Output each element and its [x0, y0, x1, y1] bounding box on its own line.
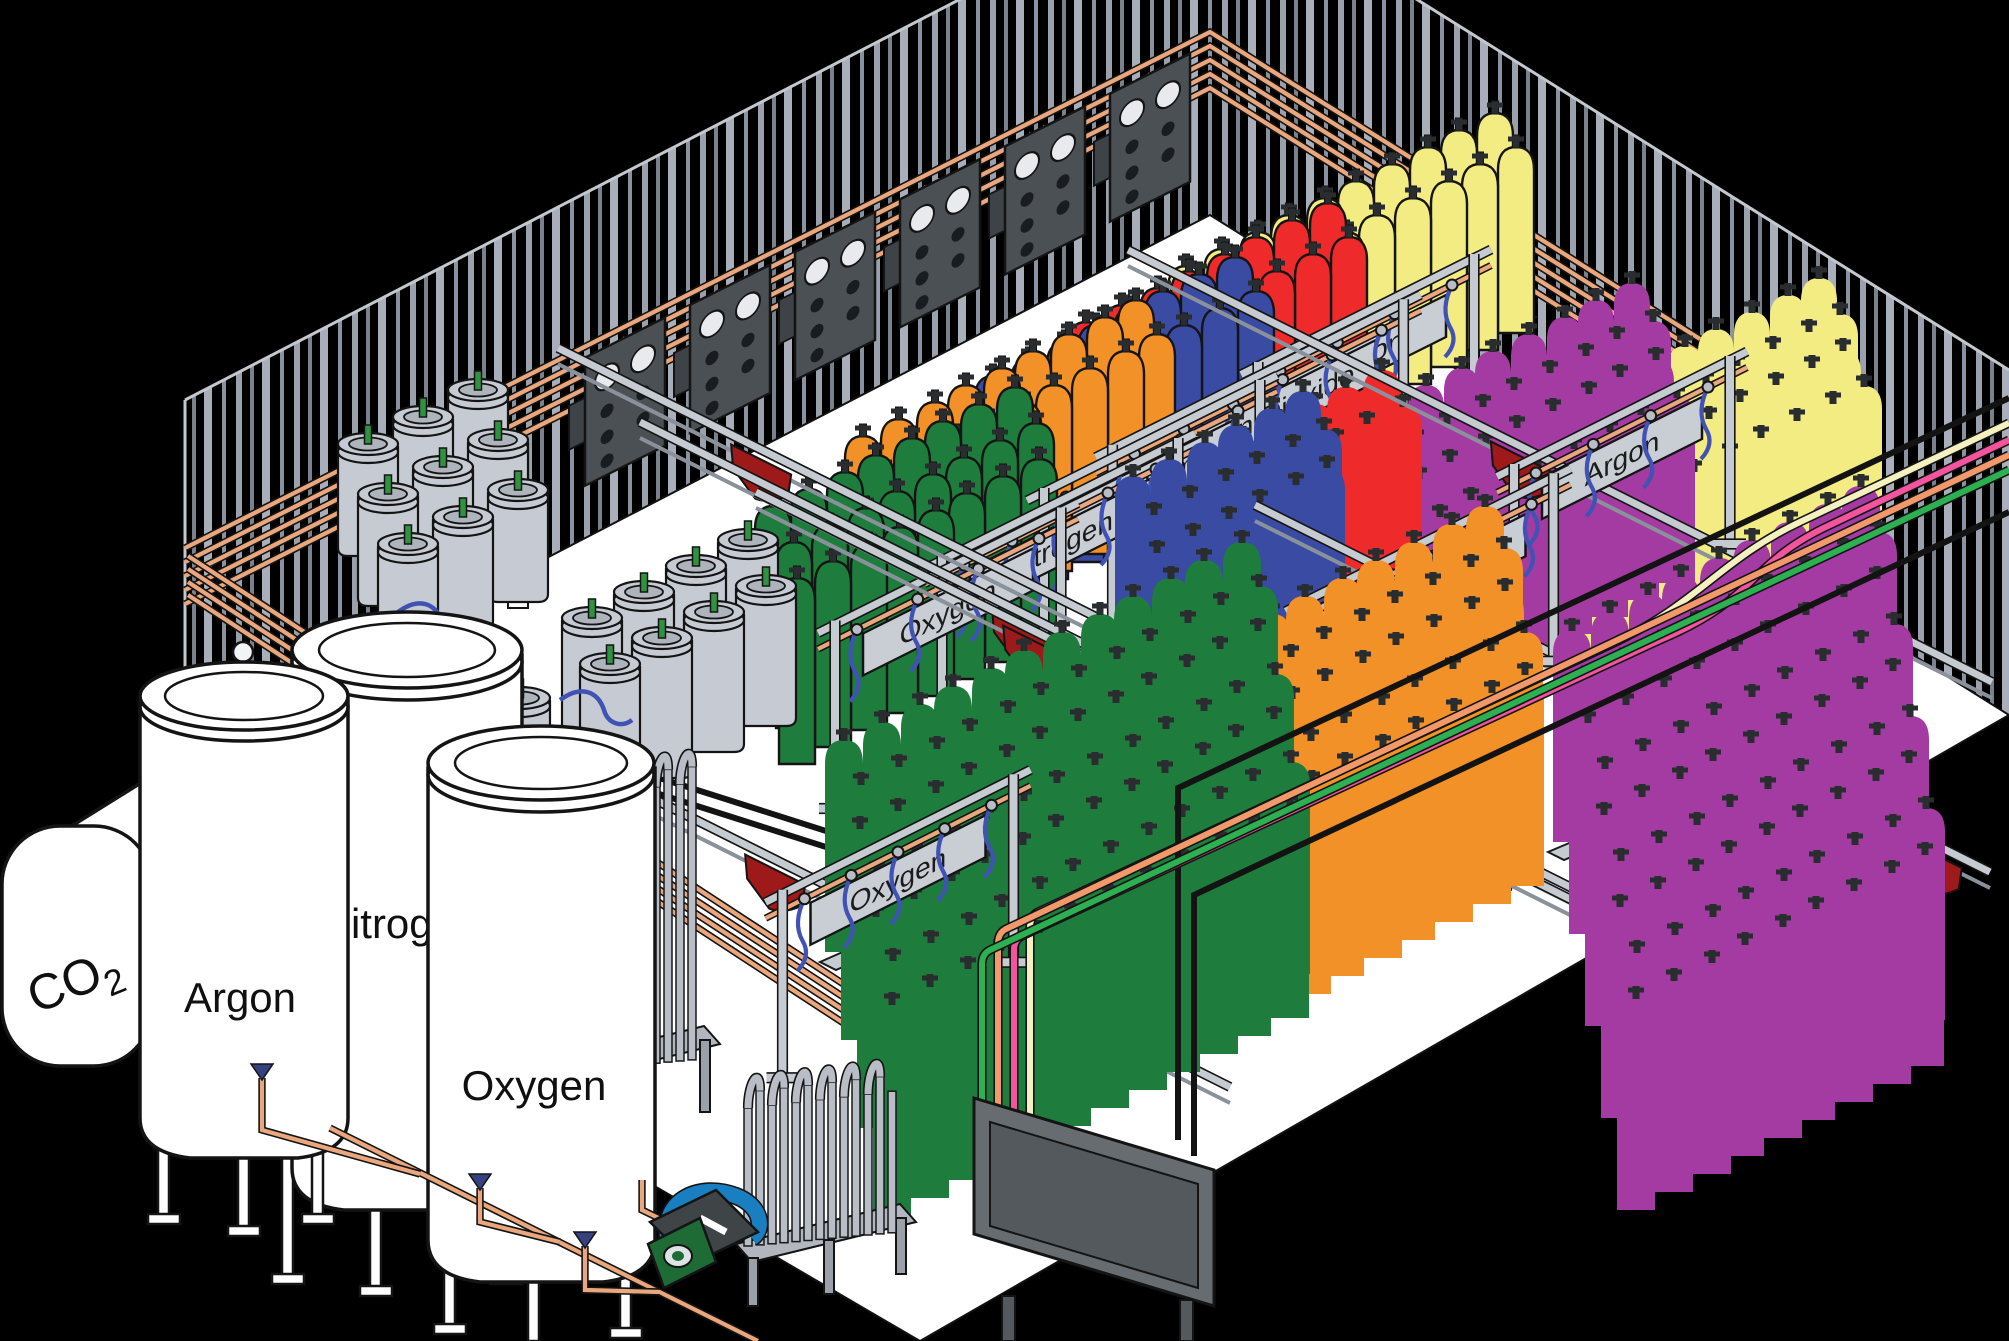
valve-wheel — [1034, 533, 1045, 544]
liquid-dewar — [488, 471, 548, 602]
gas-plant-illustration: Argon Carbon Dioxide Helium Nitrogen Oxy… — [0, 0, 2009, 1341]
gas-cylinder — [1233, 812, 1271, 1036]
valve-wheel — [912, 594, 923, 605]
vaporizer-fin — [804, 1085, 812, 1241]
liquid-dewar — [433, 498, 493, 629]
gas-cylinder — [1835, 878, 1873, 1102]
vaporizer-fin — [888, 1091, 896, 1233]
valve-wheel — [1526, 499, 1537, 510]
valve-wheel — [986, 800, 997, 811]
vaporizer-fin — [864, 1094, 872, 1235]
gas-cylinder — [1797, 896, 1835, 1120]
gas-cylinder — [1764, 914, 1802, 1138]
valve-wheel — [1588, 439, 1599, 450]
valve-wheel — [939, 823, 950, 834]
valve-wheel — [1703, 382, 1714, 393]
valve-wheel — [799, 893, 810, 904]
gas-cylinder — [1091, 884, 1129, 1108]
gas-cylinder — [1200, 830, 1238, 1054]
gas-cylinder — [1617, 986, 1655, 1210]
vaporizer-fin — [688, 767, 696, 1060]
valve-wheel — [893, 847, 904, 858]
gas-cylinder — [1873, 860, 1911, 1084]
vaporizer-fin — [876, 1077, 884, 1234]
gas-cylinder — [1129, 866, 1167, 1090]
valve-wheel — [1376, 325, 1387, 336]
gas-cylinder — [1271, 794, 1309, 1018]
vaporizer-fin — [768, 1105, 776, 1244]
gas-cylinder — [1655, 968, 1693, 1192]
valve-wheel — [1103, 488, 1114, 499]
gas-cylinder — [1053, 902, 1091, 1126]
gas-cylinder — [1906, 842, 1944, 1066]
valve-wheel — [1645, 410, 1656, 421]
oxygen-tank: Oxygen — [428, 726, 655, 1341]
valve-wheel — [1531, 468, 1542, 479]
vaporizer-fin — [840, 1097, 848, 1237]
argon-tank: Argon — [140, 662, 348, 1236]
vaporizer-fin — [816, 1100, 824, 1240]
argon-tank-label: Argon — [184, 974, 296, 1021]
vaporizer-fin — [676, 784, 684, 1061]
valve-wheel — [1447, 280, 1458, 291]
gas-cylinder — [1693, 950, 1731, 1174]
gas-cylinder — [1498, 135, 1534, 333]
gas-cylinder — [1726, 932, 1764, 1156]
vaporizer-fin — [664, 769, 672, 1062]
valve-wheel — [846, 870, 857, 881]
gas-cylinder — [911, 974, 949, 1198]
vaporizer-fin — [792, 1102, 800, 1241]
oxygen-tank-label: Oxygen — [462, 1062, 607, 1109]
vaporizer-fin — [852, 1079, 860, 1236]
valve-wheel — [852, 624, 863, 635]
vaporizer-fin — [780, 1088, 788, 1243]
vaporizer-fin — [828, 1082, 836, 1238]
